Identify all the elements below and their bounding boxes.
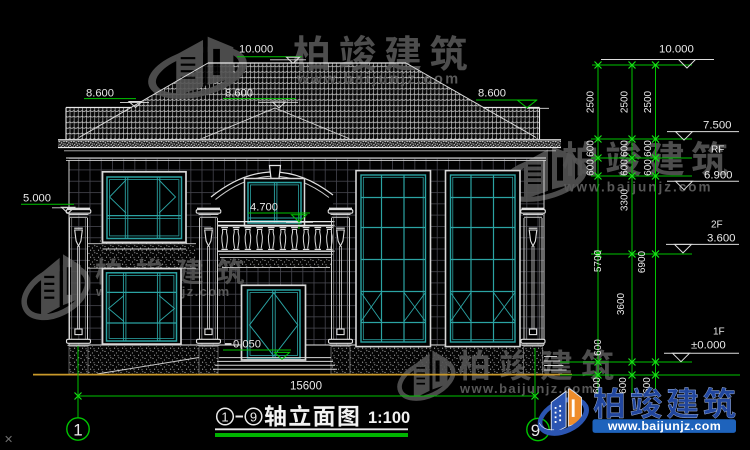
svg-text:0.050: 0.050 [233, 339, 261, 351]
svg-text:www.baijunjz.com: www.baijunjz.com [607, 419, 721, 433]
svg-text:3300: 3300 [620, 188, 631, 211]
svg-text:2500: 2500 [586, 90, 597, 113]
svg-text:8.600: 8.600 [478, 88, 506, 100]
svg-text:www.baijunjz.com: www.baijunjz.com [296, 72, 461, 88]
svg-text:1: 1 [73, 421, 82, 440]
svg-text:✕: ✕ [4, 434, 13, 446]
svg-text:600: 600 [618, 377, 629, 394]
svg-text:600: 600 [586, 140, 597, 157]
svg-text:2500: 2500 [620, 90, 631, 113]
svg-text:600: 600 [620, 140, 631, 157]
svg-text:600: 600 [643, 159, 654, 176]
svg-text:6.900: 6.900 [704, 170, 733, 182]
svg-text:3.600: 3.600 [707, 233, 736, 245]
svg-text:8.600: 8.600 [225, 88, 253, 100]
svg-text:2F: 2F [711, 220, 723, 231]
svg-text:600: 600 [643, 140, 654, 157]
svg-text:10.000: 10.000 [659, 44, 694, 56]
svg-text:6900: 6900 [637, 250, 648, 273]
svg-text:www.baijunjz.com: www.baijunjz.com [563, 180, 713, 195]
svg-text:2500: 2500 [643, 90, 654, 113]
svg-text:15600: 15600 [290, 381, 322, 393]
svg-text:5700: 5700 [593, 249, 604, 272]
svg-text:4.700: 4.700 [250, 202, 278, 214]
svg-text:RF: RF [711, 145, 724, 156]
svg-text:3600: 3600 [616, 292, 627, 315]
svg-text:600: 600 [620, 159, 631, 176]
svg-text:1F: 1F [713, 327, 725, 338]
svg-text:1:100: 1:100 [368, 409, 410, 427]
svg-text:1: 1 [221, 410, 228, 425]
svg-text:8.600: 8.600 [86, 88, 114, 100]
svg-text:±0.000: ±0.000 [691, 340, 726, 352]
svg-text:5.000: 5.000 [23, 193, 51, 205]
svg-text:7.500: 7.500 [703, 120, 732, 132]
svg-text:600: 600 [586, 159, 597, 176]
svg-text:600: 600 [593, 339, 604, 356]
svg-text:9: 9 [250, 410, 257, 425]
svg-text:10.000: 10.000 [239, 44, 273, 56]
